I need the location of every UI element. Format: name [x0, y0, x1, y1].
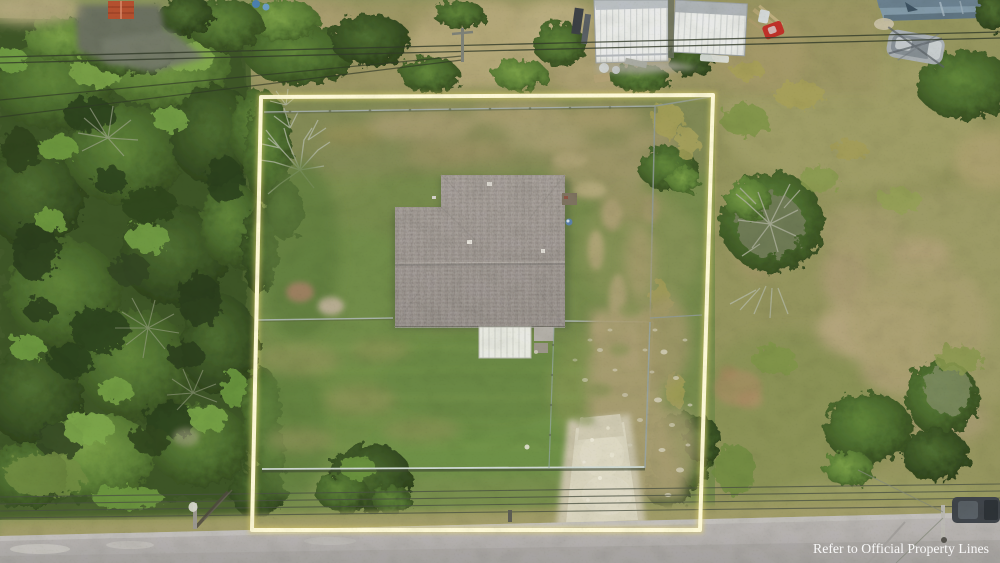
svg-text:Refer to Official Property Lin: Refer to Official Property Lines: [813, 541, 989, 556]
